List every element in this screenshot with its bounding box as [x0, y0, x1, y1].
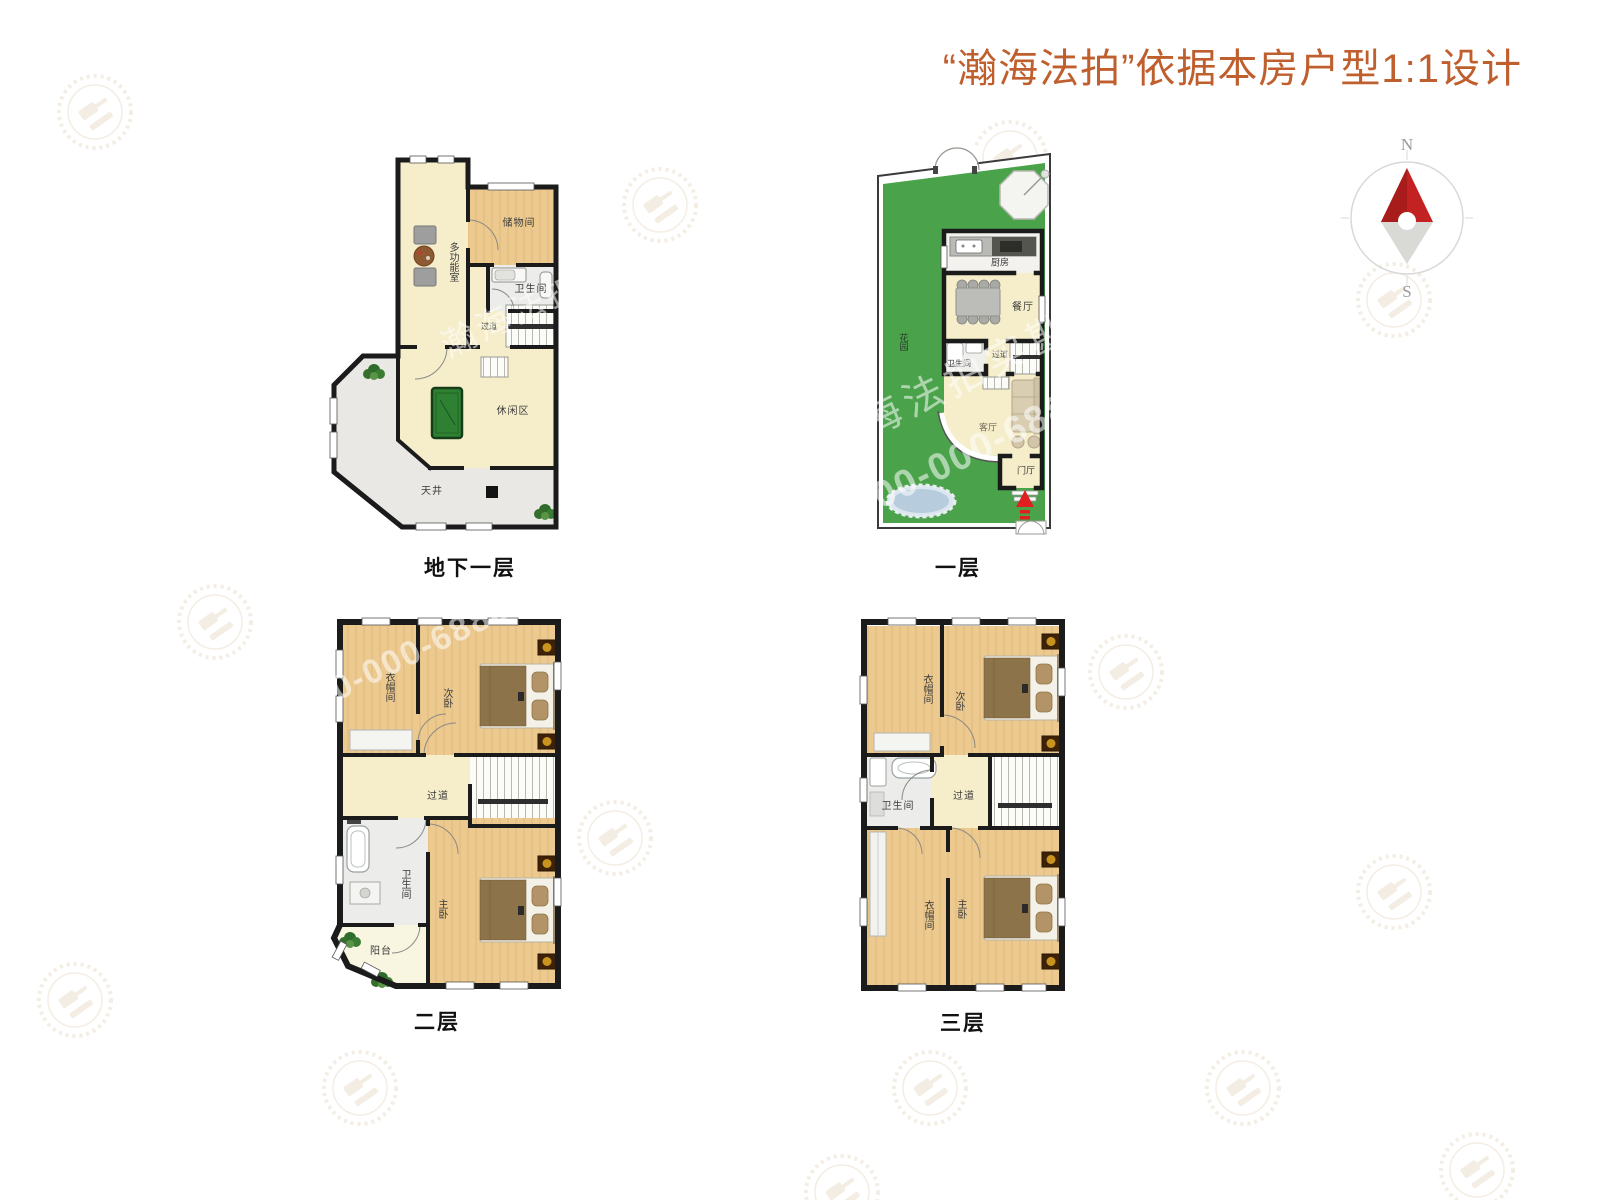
dresser-icon: [874, 733, 930, 751]
floorplan-graphics: [0, 0, 1600, 1200]
nightstand-icon: [538, 640, 556, 655]
kitchen-counter-icon: [950, 237, 1036, 256]
garden-gate-icon: [933, 148, 979, 174]
page-title: “瀚海法拍”依据本房户型1:1设计: [943, 36, 1522, 94]
room-label-cloak2: 衣帽间: [922, 900, 932, 930]
basement-mini-steps-icon: [481, 357, 508, 377]
room-label-entry: 门厅: [1017, 467, 1035, 476]
compass-south-label: S: [1402, 282, 1411, 302]
floor-caption-third: 三层: [940, 1007, 986, 1037]
room-label-storage: 储物间: [503, 219, 536, 229]
room-label-courtyard: 天井: [421, 487, 443, 497]
room-label-hall: 过道: [992, 351, 1008, 359]
bed-icon: [984, 874, 1062, 942]
pond-icon: [887, 485, 955, 517]
floor-caption-second: 二层: [414, 1006, 460, 1036]
room-label-master-bedroom: 主卧: [436, 899, 446, 919]
floor-caption-first: 一层: [935, 552, 981, 582]
nightstand-icon: [538, 954, 556, 969]
room-label-hall: 过道: [953, 792, 975, 802]
room-label-bath: 卫生间: [515, 285, 548, 295]
nightstand-icon: [538, 856, 556, 871]
second-floor-plan: [332, 618, 561, 989]
stair-rail: [478, 799, 548, 804]
room-label-balcony: 阳台: [370, 947, 392, 957]
basement-plan: [330, 156, 556, 530]
billiard-table-icon: [432, 388, 462, 438]
room-label-hall: 过道: [427, 792, 449, 802]
courtyard-pillar-icon: [486, 486, 498, 498]
gazebo-icon: [1000, 170, 1049, 219]
bed-icon: [480, 876, 558, 944]
room-label-leisure: 休闲区: [497, 407, 530, 417]
room-label-second-bedroom: 次卧: [953, 691, 963, 711]
room-label-multi: 多功能室: [447, 242, 457, 282]
floor-caption-basement: 地下一层: [424, 552, 516, 582]
bed-icon: [984, 654, 1062, 722]
bed-icon: [480, 662, 558, 730]
room-label-kitchen: 厨房: [991, 259, 1009, 268]
room-label-bath: 卫生间: [882, 802, 915, 812]
nightstand-icon: [1042, 634, 1060, 649]
floorplan-page: “瀚海法拍”依据本房户型1:1设计 N S 多功能室 储物间 卫生间 过道 休闲…: [0, 0, 1600, 1200]
room-label-dining: 餐厅: [1012, 303, 1034, 313]
room-label-bath: 卫生间: [947, 360, 971, 368]
room-label-hall: 过道: [481, 323, 497, 331]
bottom-gate-icon: [1016, 521, 1046, 534]
nightstand-icon: [1042, 852, 1060, 867]
dresser-icon: [350, 730, 412, 750]
room-label-cloak: 衣帽间: [383, 672, 393, 702]
watermark-emblems: [39, 76, 1513, 1200]
nightstand-icon: [1042, 954, 1060, 969]
room-label-bath: 卫生间: [399, 869, 409, 899]
nightstand-icon: [1042, 736, 1060, 751]
round-table-icon: [414, 246, 434, 266]
room-label-master-bedroom: 主卧: [955, 899, 965, 919]
room-label-garden: 花园: [899, 333, 908, 351]
dining-table-icon: [956, 280, 1000, 324]
room-label-cloak: 衣帽间: [921, 674, 931, 704]
nightstand-icon: [538, 734, 556, 749]
room-label-living: 客厅: [979, 424, 997, 433]
compass-north-label: N: [1401, 135, 1413, 155]
room-label-second-bedroom: 次卧: [441, 688, 451, 708]
stair-rail: [998, 803, 1052, 808]
